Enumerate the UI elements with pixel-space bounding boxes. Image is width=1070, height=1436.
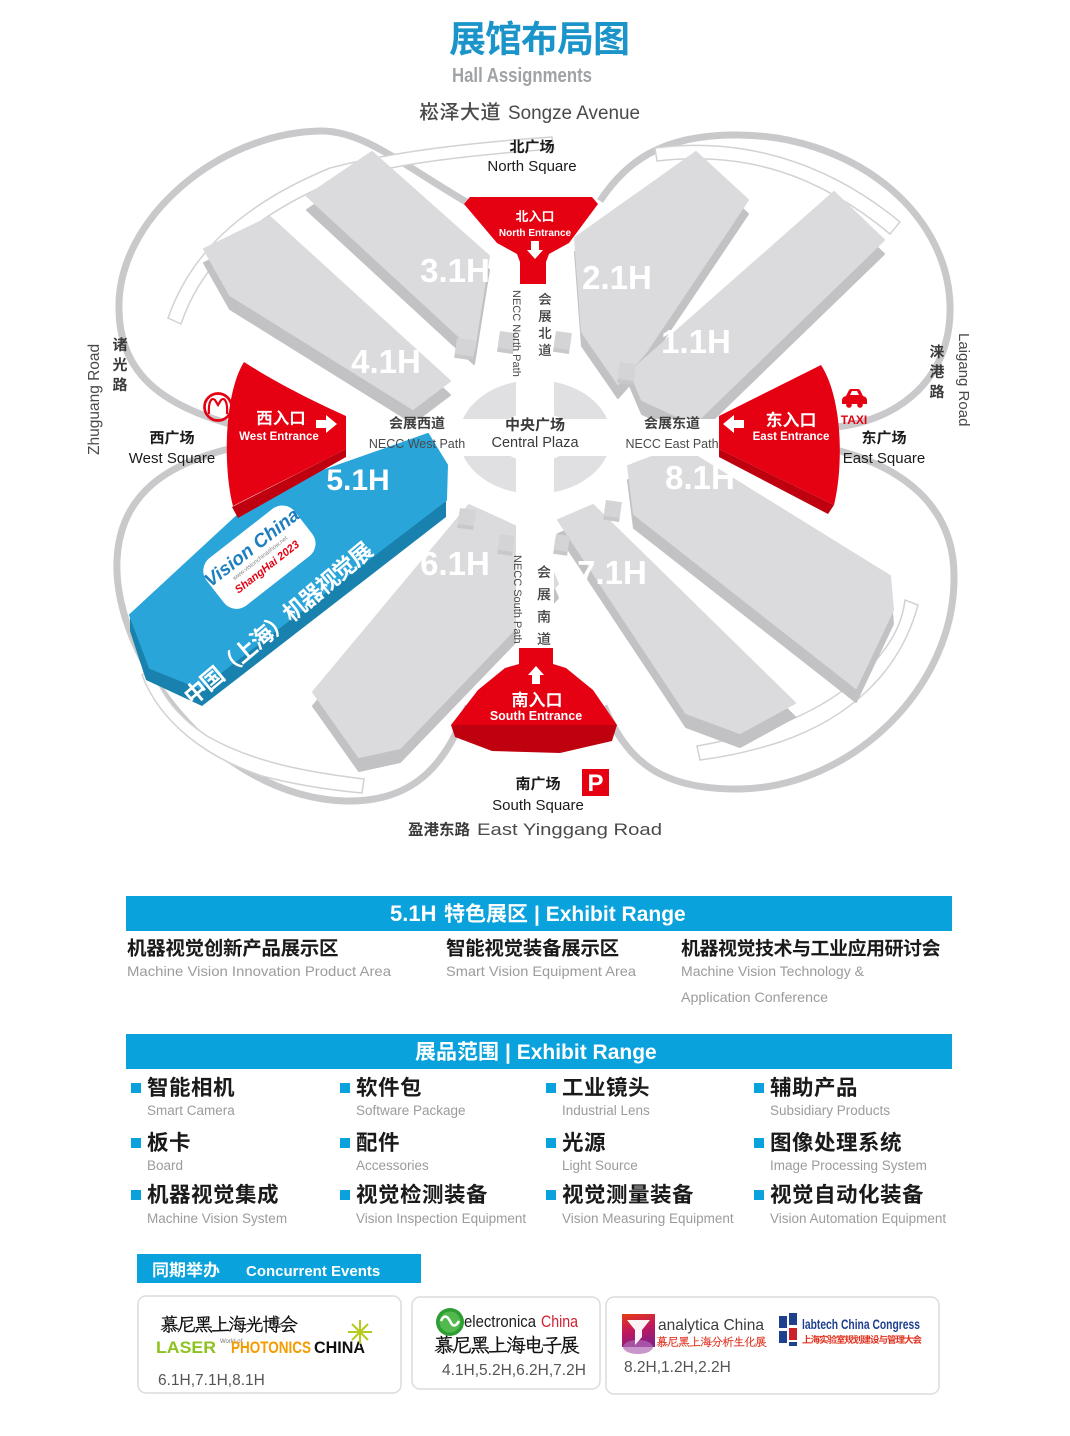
svg-text:West Square: West Square: [129, 450, 215, 467]
svg-text:6.1H: 6.1H: [420, 545, 490, 582]
svg-text:North Entrance: North Entrance: [499, 228, 572, 239]
svg-text:NECC East Path: NECC East Path: [625, 437, 718, 451]
svg-text:East Square: East Square: [843, 450, 926, 467]
svg-text:Image Processing System: Image Processing System: [770, 1158, 927, 1173]
svg-text:Application Conference: Application Conference: [681, 989, 828, 1005]
svg-text:Zhuguang Road: Zhuguang Road: [86, 344, 103, 455]
svg-text:West Entrance: West Entrance: [239, 431, 319, 443]
svg-text:Concurrent Events: Concurrent Events: [246, 1263, 380, 1280]
svg-text:labtech China Congress: labtech China Congress: [802, 1317, 920, 1332]
svg-text:Vision Automation Equipment: Vision Automation Equipment: [770, 1211, 946, 1226]
svg-text:Central Plaza: Central Plaza: [491, 435, 579, 451]
svg-text:2.1H: 2.1H: [582, 259, 652, 296]
svg-text:| Exhibit Range: | Exhibit Range: [534, 903, 686, 926]
svg-text:Software Package: Software Package: [356, 1103, 466, 1118]
svg-text:Subsidiary Products: Subsidiary Products: [770, 1103, 890, 1118]
svg-text:CHINA: CHINA: [314, 1338, 365, 1357]
svg-text:| Exhibit Range: | Exhibit Range: [505, 1041, 657, 1064]
svg-text:NECC West Path: NECC West Path: [369, 437, 465, 451]
svg-text:1.1H: 1.1H: [661, 323, 731, 360]
svg-text:electronica: electronica: [464, 1313, 537, 1331]
svg-text:Industrial Lens: Industrial Lens: [562, 1103, 650, 1118]
svg-text:8.2H,1.2H,2.2H: 8.2H,1.2H,2.2H: [624, 1359, 731, 1376]
svg-text:Accessories: Accessories: [356, 1158, 429, 1173]
svg-text:South Entrance: South Entrance: [490, 709, 582, 723]
svg-text:Smart Vision Equipment Area: Smart Vision Equipment Area: [446, 963, 636, 979]
svg-text:7.1H: 7.1H: [577, 554, 647, 591]
svg-text:Light Source: Light Source: [562, 1158, 638, 1173]
svg-text:East Yinggang Road: East Yinggang Road: [477, 820, 662, 839]
svg-text:5.1H: 5.1H: [326, 464, 389, 497]
svg-text:East Entrance: East Entrance: [753, 431, 830, 443]
svg-text:Machine Vision Innovation Prod: Machine Vision Innovation Product Area: [127, 963, 391, 979]
svg-text:analytica China: analytica China: [658, 1317, 764, 1334]
svg-text:Machine Vision System: Machine Vision System: [147, 1211, 287, 1226]
svg-text:Laigang Road: Laigang Road: [955, 333, 972, 426]
svg-text:North Square: North Square: [487, 158, 576, 175]
svg-text:Vision Inspection Equipment: Vision Inspection Equipment: [356, 1211, 526, 1226]
svg-text:6.1H,7.1H,8.1H: 6.1H,7.1H,8.1H: [158, 1372, 265, 1389]
svg-text:China: China: [541, 1313, 579, 1331]
svg-text:Vision Measuring Equipment: Vision Measuring Equipment: [562, 1211, 734, 1226]
svg-text:LASER: LASER: [156, 1338, 216, 1357]
svg-text:Board: Board: [147, 1158, 183, 1173]
svg-text:4.1H,5.2H,6.2H,7.2H: 4.1H,5.2H,6.2H,7.2H: [442, 1362, 586, 1379]
svg-text:NECC North Path: NECC North Path: [510, 290, 522, 377]
svg-text:Machine Vision Technology &: Machine Vision Technology &: [681, 963, 865, 979]
svg-text:Hall Assignments: Hall Assignments: [452, 65, 592, 87]
svg-text:PHOTONICS: PHOTONICS: [231, 1338, 311, 1357]
svg-text:NECC South Path: NECC South Path: [511, 555, 523, 644]
svg-text:P: P: [587, 770, 603, 797]
svg-text:TAXI: TAXI: [841, 413, 867, 427]
svg-text:Smart Camera: Smart Camera: [147, 1103, 235, 1118]
svg-text:South Square: South Square: [492, 797, 584, 814]
svg-text:4.1H: 4.1H: [351, 343, 421, 380]
svg-text:5.1H: 5.1H: [390, 901, 436, 926]
svg-text:8.1H: 8.1H: [665, 459, 735, 496]
svg-text:3.1H: 3.1H: [420, 252, 490, 289]
svg-text:Songze Avenue: Songze Avenue: [508, 103, 640, 124]
